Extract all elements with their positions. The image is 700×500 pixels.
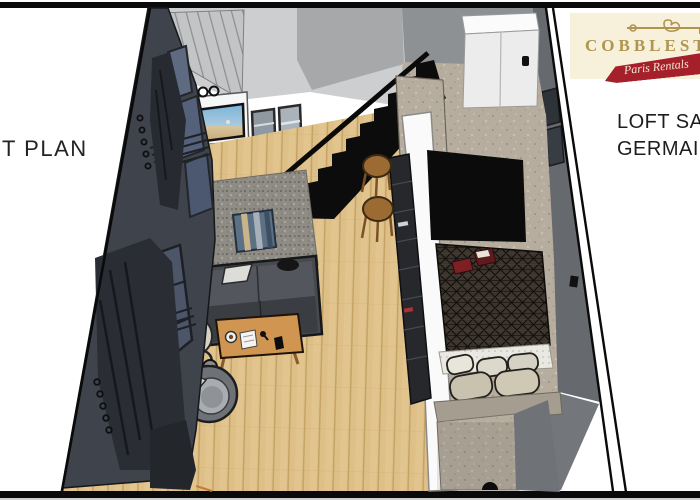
top-border-bar [0,2,700,8]
window-3 [185,154,213,217]
right-window-lower [546,126,564,166]
wall-switch [569,275,578,287]
bed-headboard-panel [427,150,526,242]
kitchen-cabinet [462,13,539,108]
sofa-cushion-dark [277,259,299,271]
right-caption-line2: GERMAIN [617,136,700,163]
cabinet-handle [522,56,529,66]
bottom-border-bar [0,491,700,498]
notebook [240,330,257,349]
key-ornament-icon [625,17,700,37]
floor-plan-page: T PLAN LOFT SAINT GERMAIN COBBLESTONE Pa… [0,0,700,500]
brand-logo: COBBLESTONE Paris Rentals [570,13,700,79]
left-caption: T PLAN [2,136,88,162]
floor-pouf [233,210,276,252]
right-caption-line1: LOFT SAINT [617,109,700,136]
right-caption: LOFT SAINT GERMAIN [617,109,700,163]
window-wall [62,8,215,490]
